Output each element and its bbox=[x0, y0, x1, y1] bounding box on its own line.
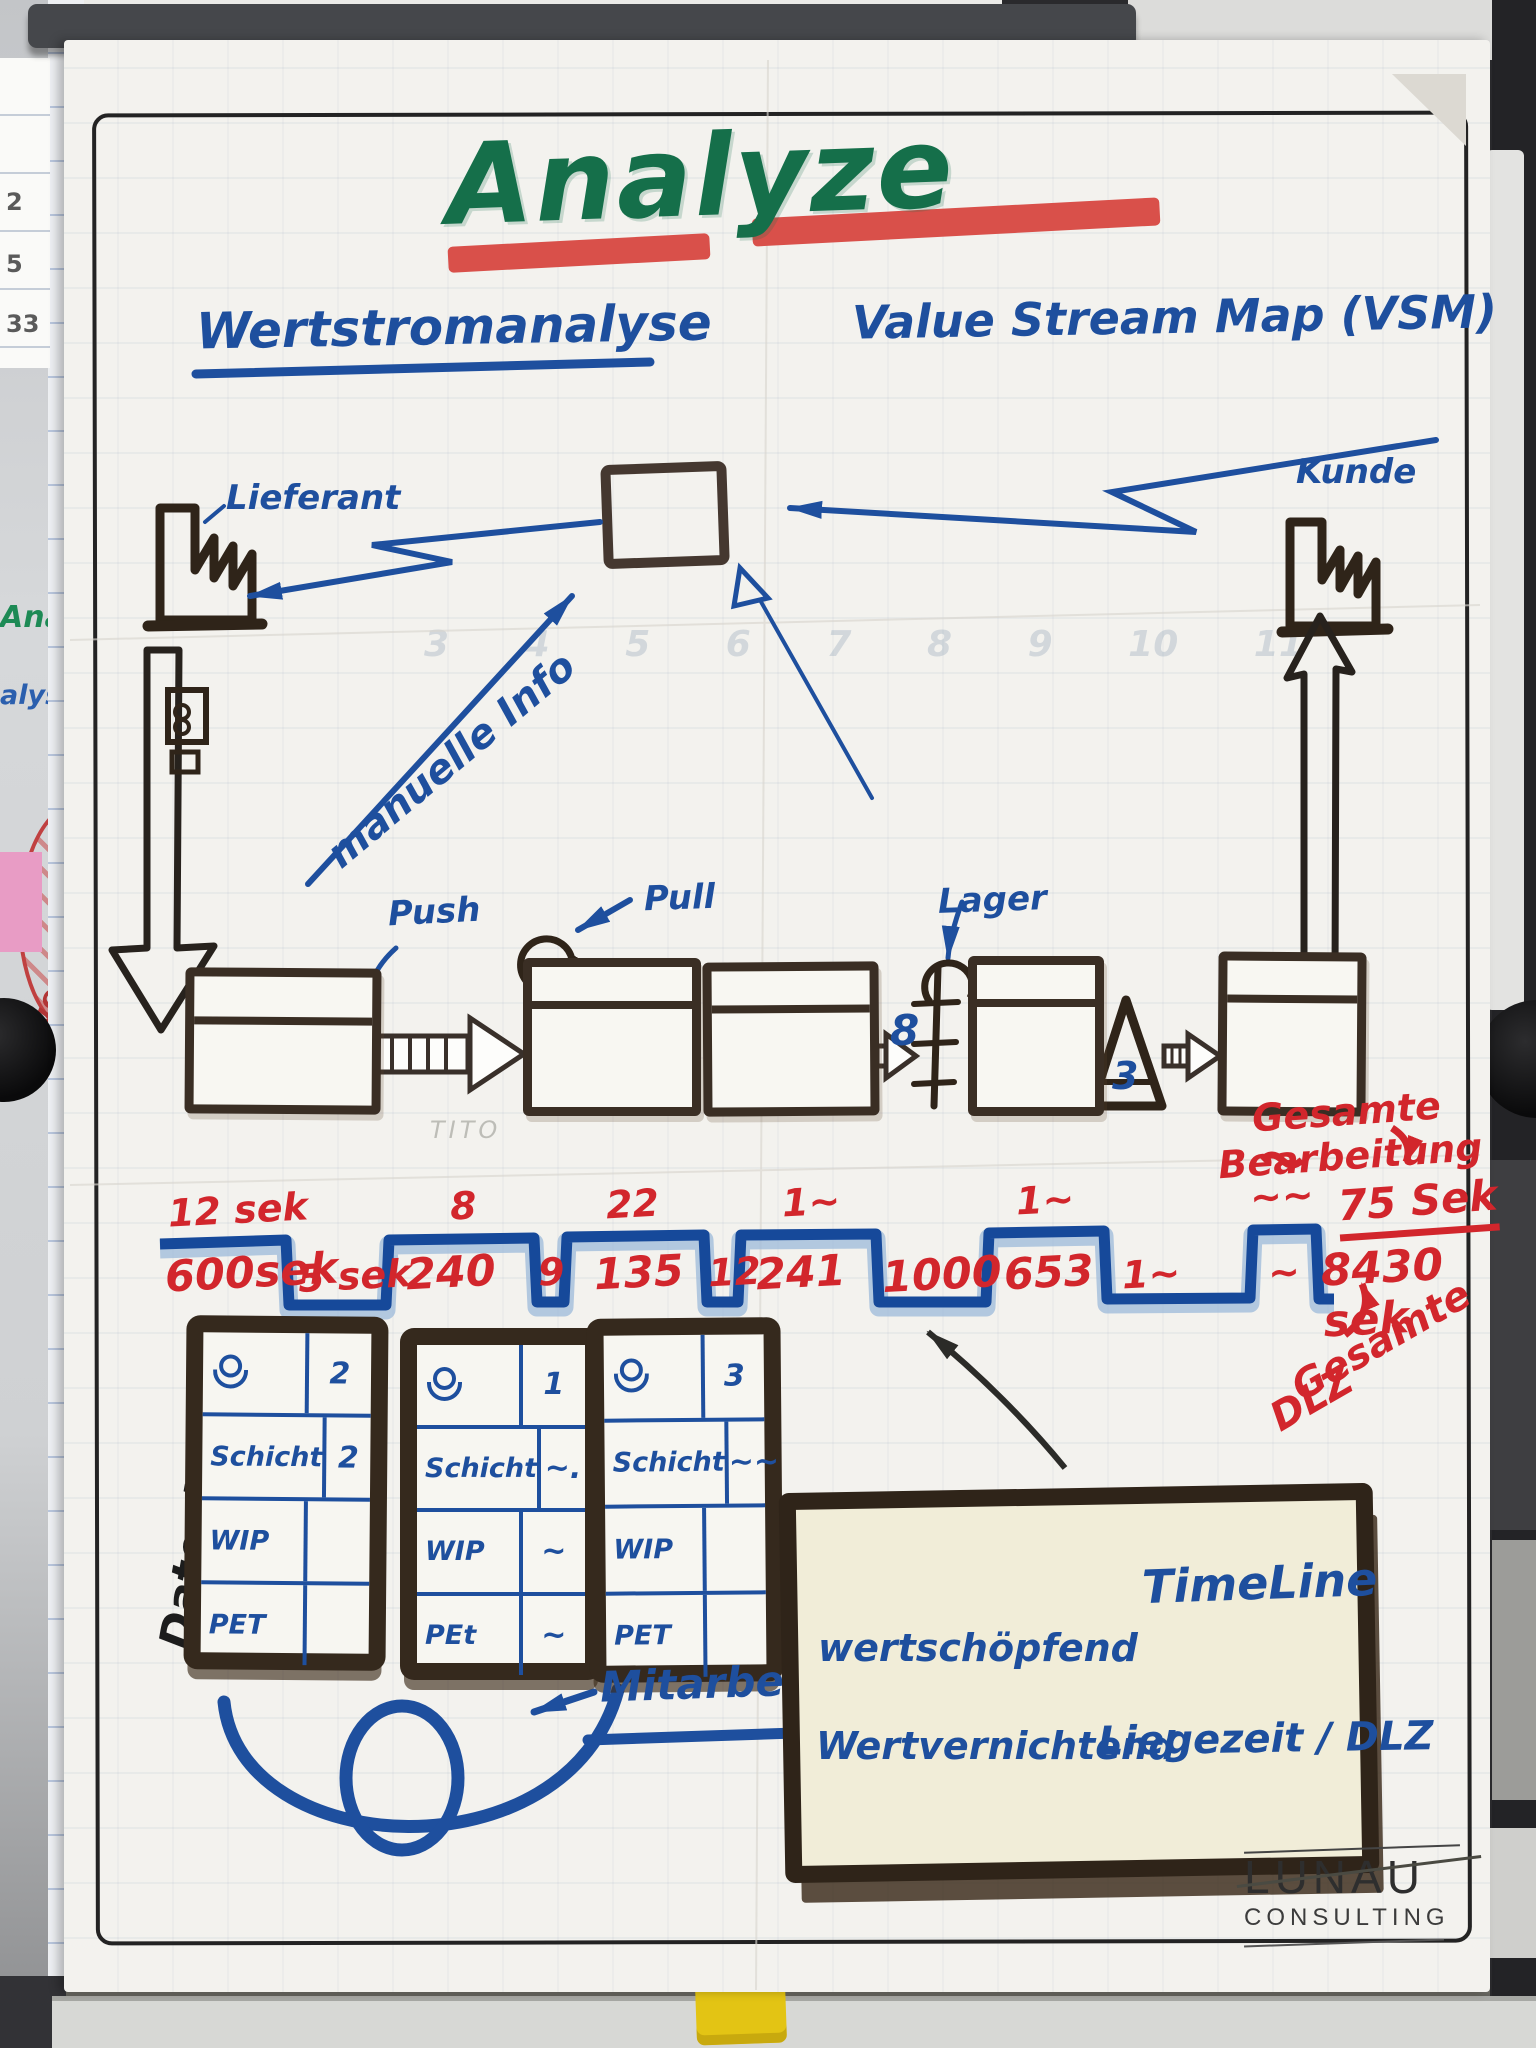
databox-row-label: Schicht bbox=[417, 1429, 541, 1509]
databox-value: 3 bbox=[704, 1334, 764, 1417]
shipment-arrow-up bbox=[1287, 616, 1352, 984]
databox-row-label: WIP bbox=[417, 1512, 523, 1592]
timeline-top-value: 1~ bbox=[781, 1179, 842, 1226]
inventory-stack-icon bbox=[914, 968, 958, 1106]
logo: LUNAU CONSULTING bbox=[1244, 1848, 1474, 1944]
databox-value: 2 bbox=[326, 1417, 371, 1497]
process-box bbox=[184, 967, 381, 1114]
databox: 2 Schicht 2 WIP PET bbox=[183, 1315, 388, 1671]
databox: 1 Schicht ~. WIP ~ PEt ~ bbox=[400, 1328, 602, 1680]
subtitle-underline bbox=[196, 362, 650, 374]
databox-value: 1 bbox=[523, 1345, 585, 1425]
lager-label: Lager bbox=[937, 878, 1047, 922]
push-label: Push bbox=[387, 890, 481, 935]
timeline-bottom-value: 1000 bbox=[881, 1247, 1003, 1303]
supplier-factory-icon bbox=[160, 508, 252, 620]
databox-row-label: PEt bbox=[417, 1596, 523, 1676]
databox-value bbox=[306, 1585, 369, 1666]
info-arrow-lager-to-control bbox=[760, 600, 872, 798]
shipment-icon bbox=[168, 690, 206, 772]
timeline-bottom-value: 653 bbox=[1003, 1246, 1095, 1301]
customer-factory-base bbox=[1282, 629, 1388, 632]
timeline-bottom-value: 135 bbox=[593, 1246, 685, 1301]
operator-icon bbox=[612, 1359, 648, 1395]
timeline-top-value: 8 bbox=[449, 1183, 478, 1228]
databox-value: 2 bbox=[308, 1333, 371, 1414]
mitarbeiter-pointer-arrow bbox=[534, 1692, 594, 1712]
push-arrow-large bbox=[374, 1018, 524, 1090]
supplier-factory-base bbox=[148, 624, 262, 626]
timeline-bottom-value: 1~ bbox=[1121, 1251, 1182, 1298]
pull-pointer-arrow bbox=[578, 900, 630, 930]
triangle-count: 3 bbox=[1112, 1054, 1138, 1098]
total-processing-value: 75 Sek bbox=[1336, 1171, 1500, 1242]
databox-value bbox=[307, 1501, 370, 1582]
legend-wait-label: Liegezeit / DLZ bbox=[1098, 1713, 1434, 1765]
legend-to-timeline-arrow bbox=[928, 1332, 1065, 1468]
info-arrow-control-to-supplier bbox=[250, 522, 600, 596]
timeline-bottom-value: 241 bbox=[755, 1246, 847, 1301]
pull-label: Pull bbox=[643, 877, 716, 919]
databox-value: ~. bbox=[541, 1429, 585, 1509]
process-box bbox=[968, 956, 1104, 1116]
production-control-box bbox=[605, 466, 724, 564]
timeline-top-value: ~~ bbox=[1249, 1172, 1315, 1219]
timeline-top-value: 22 bbox=[605, 1181, 660, 1228]
flipchart-photo: Anal alyse MWOOD 2 5 33 3 4 5 6 7 8 9 10… bbox=[0, 0, 1536, 2048]
databox-row-label: Schicht bbox=[604, 1421, 729, 1505]
customer-label: Kunde bbox=[1296, 452, 1416, 492]
timeline-top-value: 1~ bbox=[1015, 1177, 1076, 1224]
subtitle-vsm: Value Stream Map (VSM) bbox=[852, 284, 1498, 349]
supplier-label: Lieferant bbox=[226, 478, 400, 518]
databox-value: ~ bbox=[523, 1512, 585, 1592]
inventory-count: 8 bbox=[890, 1006, 919, 1055]
databox-row-label: PET bbox=[201, 1584, 307, 1665]
databox-row-label: WIP bbox=[605, 1508, 707, 1591]
timeline-bottom-value: 9 bbox=[537, 1249, 566, 1294]
process-box bbox=[702, 961, 879, 1116]
timeline-bottom-value: 240 bbox=[405, 1246, 497, 1301]
legend-box bbox=[779, 1483, 1380, 1883]
logo-line2: CONSULTING bbox=[1244, 1904, 1474, 1932]
timeline-bottom-value: 5 sek bbox=[297, 1251, 412, 1301]
databox: 3 Schicht ~~ WIP PET bbox=[586, 1317, 783, 1683]
operator-icon bbox=[425, 1367, 461, 1403]
databox-row-label: WIP bbox=[201, 1500, 307, 1581]
databox-value bbox=[706, 1507, 766, 1590]
timeline-top-value: 12 sek bbox=[167, 1184, 309, 1235]
customer-factory-icon bbox=[1290, 522, 1376, 626]
legend-timeline-label: TimeLine bbox=[1141, 1552, 1378, 1614]
label-dash bbox=[205, 506, 224, 522]
legend-value-adding-label: wertschöpfend bbox=[818, 1626, 1138, 1670]
logo-line1: LUNAU bbox=[1244, 1850, 1474, 1904]
databox-value: ~~ bbox=[728, 1421, 779, 1504]
timeline-bottom-value: ~ bbox=[1267, 1249, 1301, 1295]
hollow-arrowhead bbox=[734, 568, 768, 606]
page-title: Analyze bbox=[444, 103, 957, 251]
operator-symbol bbox=[224, 1690, 618, 1850]
process-box bbox=[523, 958, 701, 1116]
operator-icon bbox=[211, 1354, 247, 1390]
subtitle-wertstromanalyse: Wertstromanalyse bbox=[196, 294, 713, 361]
databox-value: ~ bbox=[523, 1596, 585, 1676]
timeline-bottom-value: 12 bbox=[707, 1249, 762, 1296]
pull-loop-icon bbox=[925, 963, 973, 1002]
databox-row-label: Schicht bbox=[202, 1416, 327, 1497]
push-arrow-small bbox=[1164, 1034, 1220, 1078]
